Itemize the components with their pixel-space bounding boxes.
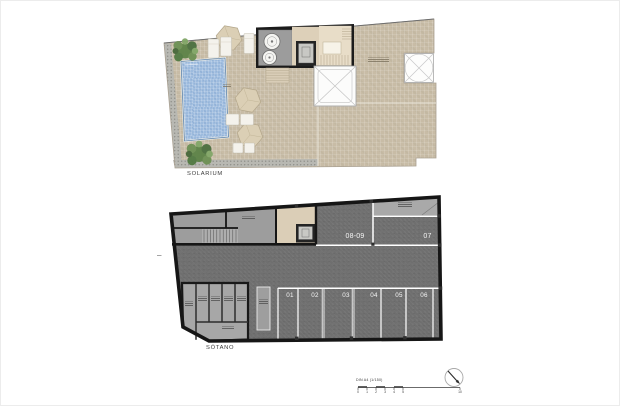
room-label-smudge [237,296,246,301]
scale-tick: 2 [373,390,379,394]
skylight-x-icon [314,66,356,106]
deck-joint-lines [318,103,436,166]
plant-icon [173,38,199,61]
basement-overlay [156,191,456,353]
room-label-smudge [222,326,234,330]
stall-number: 01 [279,292,301,300]
elevator-icon [296,224,315,243]
exterior-stairs-icon [266,68,289,83]
room-label-smudge [211,296,220,301]
scale-bar: DIN A4 (1/150) 0 1 2 3 4 5 10 [356,378,468,396]
stall-number: 05 [388,292,410,300]
scale-tick: 4 [391,390,397,394]
drawing-sheet: SOLARIUM [0,0,620,406]
scale-tick: 5 [400,390,406,394]
solarium-plan [156,13,456,183]
room-label-smudge [242,216,255,220]
skylight-circle-icon [405,54,434,83]
deck-annotation-smudge [223,84,231,88]
scale-tick: 10 [457,390,463,394]
stall-number: 06 [413,292,435,300]
solarium-title: SOLARIUM [187,171,223,177]
stall-number: 08-09 [338,233,372,241]
stall-number: 04 [363,292,385,300]
elevator-icon [296,41,316,66]
basement-title: SÓTANO [206,345,234,351]
room-label-smudge [198,296,207,301]
scale-tick: 3 [382,390,388,394]
scale-title: DIN A4 (1/150) [356,378,383,382]
stairs-icon [319,26,352,66]
room-label-smudge [224,296,233,301]
pool-edge [181,58,229,141]
room-label-smudge [398,202,412,207]
room-label-smudge [259,299,268,304]
stall-number: 07 [414,233,441,241]
stall-number: 03 [335,292,357,300]
roof-core [256,24,354,68]
scale-tick: 0 [355,390,361,394]
solarium-overlay [156,13,456,183]
stall-number: 02 [304,292,326,300]
plant-icon [186,141,213,166]
room-label-smudge [185,301,193,306]
scale-tick: 1 [364,390,370,394]
deck-annotation-smudge [368,57,389,62]
storage-room-small [257,287,270,330]
basement-plan: 08-09 07 01 02 03 04 05 06 [156,191,456,353]
